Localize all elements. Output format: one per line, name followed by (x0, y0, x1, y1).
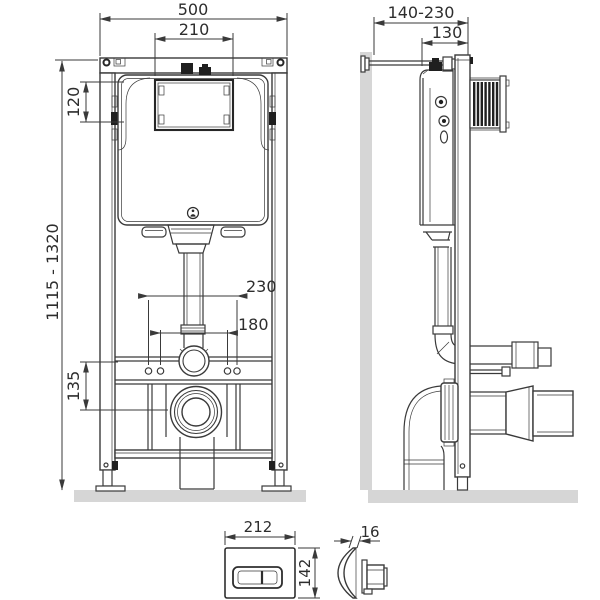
dim-depth-range-label: 140-230 (388, 3, 455, 22)
dim-installation-height: 1115 - 1320 (43, 60, 98, 490)
dim-plate-height: 142 (296, 548, 320, 598)
flush-plate-side-view: 16 (334, 523, 387, 598)
side-view: 140-230 130 (361, 3, 573, 490)
frame-hole-right-icon (278, 60, 284, 66)
dim-access-window-width-label: 210 (179, 20, 210, 39)
cistern-front (118, 63, 269, 225)
person-icon (188, 208, 199, 219)
dim-plate-thickness: 16 (334, 523, 380, 548)
dim-plate-height-label: 142 (296, 559, 314, 588)
wall-side-view (360, 52, 372, 490)
fill-valve-cap-side-icon (429, 62, 442, 71)
fill-valve-cap-icon (181, 63, 193, 74)
dim-frame-width-label: 500 (178, 0, 209, 19)
installation-frame-drawing: 500 210 120 1115 - 1320 135 230 (0, 0, 600, 600)
dim-plate-width: 212 (225, 518, 295, 545)
drain-connector-side (470, 386, 573, 441)
dim-fixing-spacing-230-label: 230 (246, 277, 277, 296)
frame-feet (96, 461, 291, 491)
flush-elbow-side (435, 334, 551, 376)
access-sleeve-side (470, 76, 509, 132)
dim-installation-height-label: 1115 - 1320 (43, 223, 62, 320)
dim-plate-width-label: 212 (244, 518, 273, 536)
flush-pipe-front (142, 225, 245, 376)
floor-side-view (368, 490, 578, 503)
flush-plate-button (233, 567, 282, 588)
drain-outlet-front (115, 384, 272, 489)
frame-hole-left-icon (104, 60, 110, 66)
floor-front-view (74, 490, 306, 502)
drain-elbow-side (404, 379, 458, 490)
technical-drawing-page: 500 210 120 1115 - 1320 135 230 (0, 0, 600, 600)
cistern-side (420, 58, 455, 334)
flush-plate-mechanism (362, 560, 387, 594)
front-view: 500 210 120 1115 - 1320 135 230 (43, 0, 291, 491)
dim-fixing-spacing-180-label: 180 (238, 315, 269, 334)
dim-window-height-label: 120 (64, 87, 83, 118)
dim-plate-thickness-label: 16 (360, 523, 379, 541)
flush-plate-front-view: 212 142 (225, 518, 320, 598)
dim-drain-height-label: 135 (64, 371, 83, 402)
dim-frame-depth-label: 130 (432, 23, 463, 42)
